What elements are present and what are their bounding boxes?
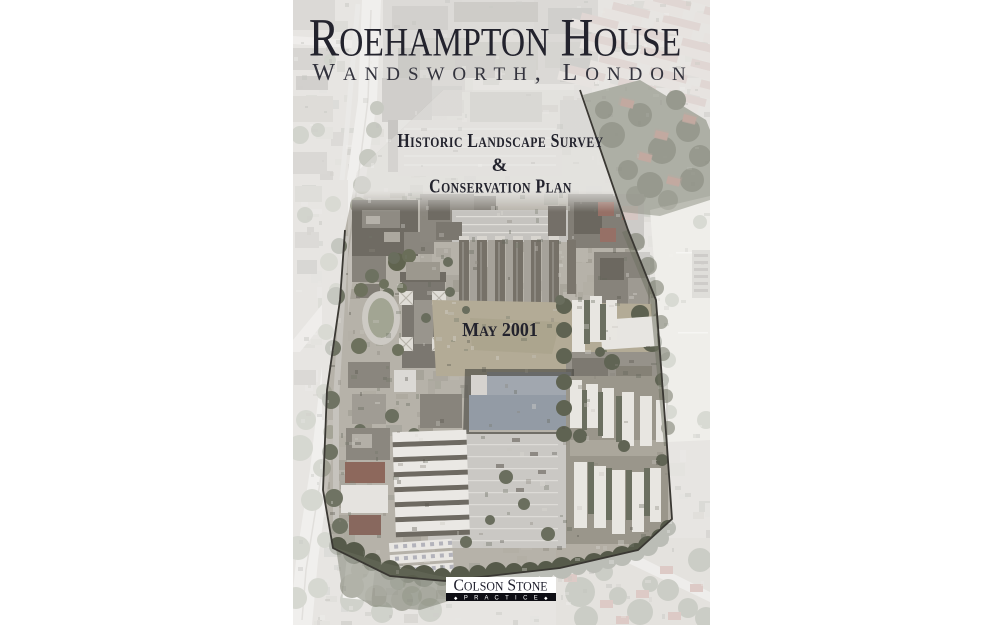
svg-text:MAY 2001: MAY 2001 — [462, 319, 538, 341]
svg-text:CONSERVATION PLAN: CONSERVATION PLAN — [429, 175, 572, 197]
svg-text:HISTORIC LANDSCAPE SURVEY: HISTORIC LANDSCAPE SURVEY — [397, 129, 603, 151]
svg-text:COLSON STONE: COLSON STONE — [453, 577, 547, 594]
svg-text:◆ P R A C T I C E ◆: ◆ P R A C T I C E ◆ — [454, 595, 550, 601]
svg-text:&: & — [492, 155, 508, 176]
svg-text:WANDSWORTH, LONDON: WANDSWORTH, LONDON — [312, 60, 693, 86]
svg-text:ROEHAMPTON HOUSE: ROEHAMPTON HOUSE — [309, 8, 681, 68]
